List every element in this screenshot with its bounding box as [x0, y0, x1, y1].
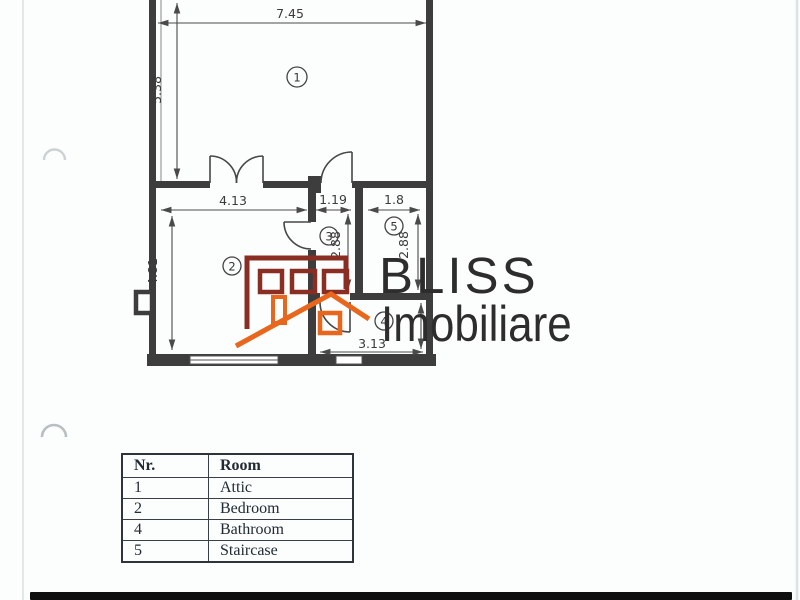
room2-number: 2: [228, 260, 235, 274]
legend-row: 4 Bathroom: [122, 520, 353, 541]
window-room4: [336, 356, 362, 364]
house-chimney: [273, 297, 285, 323]
legend-cell-room: Staircase: [209, 541, 354, 563]
legend-cell-room: Bedroom: [209, 499, 354, 520]
room1-number: 1: [293, 71, 300, 85]
room3-number: 3: [325, 230, 332, 244]
wall-room35: [355, 188, 363, 298]
legend-cell-nr: 4: [122, 520, 209, 541]
double-door-right-arc: [236, 156, 263, 183]
dim-label-room5-width: 1.8: [384, 192, 404, 207]
legend-header-nr: Nr.: [122, 454, 209, 478]
legend-row: 5 Staircase: [122, 541, 353, 563]
legend-row: 2 Bedroom: [122, 499, 353, 520]
legend-cell-nr: 2: [122, 499, 209, 520]
door-room3-arc: [284, 222, 311, 249]
wall-bump-left: [136, 292, 152, 313]
watermark-house-icon: [236, 258, 369, 346]
house-roof: [236, 294, 369, 346]
legend-cell-nr: 5: [122, 541, 209, 563]
door-room1-arc: [321, 152, 352, 183]
legend-table: Nr. Room 1 Attic 2 Bedroom 4 Bathroom 5 …: [121, 453, 354, 563]
legend-row: 1 Attic: [122, 478, 353, 499]
wall-mid-a: [149, 181, 210, 188]
legend-header-row: Nr. Room: [122, 454, 353, 478]
dim-label-room1-height: 5.38: [149, 76, 164, 104]
watermark-subtitle: Imobiliare: [381, 299, 572, 349]
legend-cell-room: Attic: [209, 478, 354, 499]
windows: [190, 356, 362, 364]
legend-header-room: Room: [209, 454, 354, 478]
wall-room23-upper: [308, 188, 316, 222]
watermark-title: BLISS: [379, 250, 539, 301]
wall-mid-c: [352, 181, 433, 188]
dim-label-room2-height: 4.81: [145, 258, 160, 286]
wall-mid-b: [263, 181, 313, 188]
room5-number: 5: [390, 220, 397, 234]
legend-cell-room: Bathroom: [209, 520, 354, 541]
house-window-1: [260, 271, 282, 292]
dim-label-room2-width: 4.13: [219, 193, 247, 208]
scan-edge-bar: [30, 592, 792, 600]
scanned-floorplan-page: { "scan": { "background": "#fcfdfd", "li…: [0, 0, 800, 600]
dim-label-room3-width: 1.19: [319, 192, 347, 207]
legend-cell-nr: 1: [122, 478, 209, 499]
double-door-left-arc: [210, 156, 237, 183]
dim-label-room1-width: 7.45: [276, 6, 304, 21]
punch-hole-bottom-icon: [42, 425, 66, 437]
punch-hole-top-icon: [44, 150, 65, 161]
